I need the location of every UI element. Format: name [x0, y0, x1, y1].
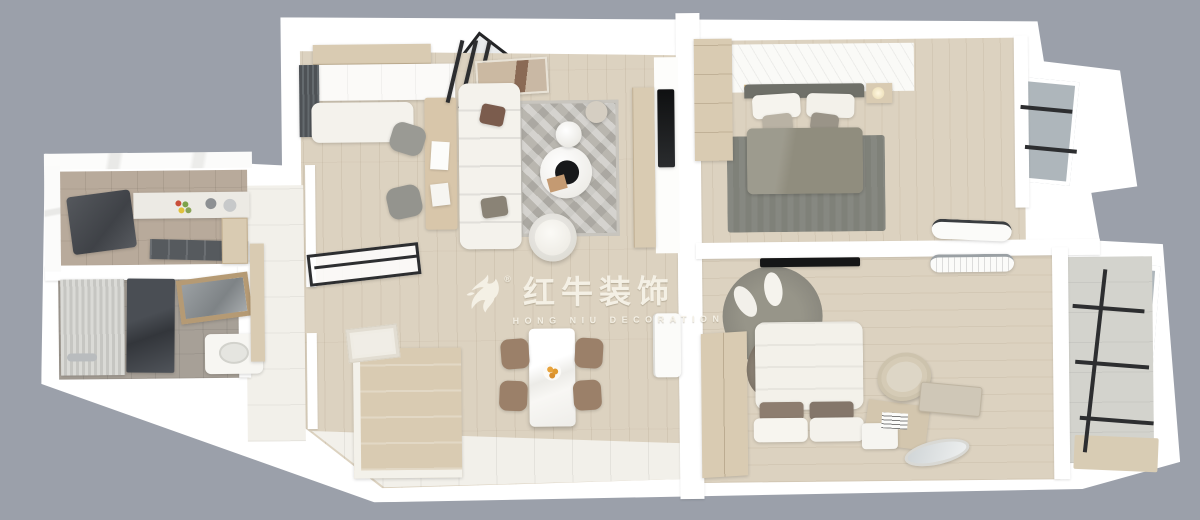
bedroom2-ac-unit [930, 254, 1014, 273]
bedroom2-pillow-white-1 [754, 418, 808, 443]
kitchen-dark-fridge [66, 189, 137, 255]
relief-wall-art [345, 324, 401, 364]
bedroom1-duvet [747, 127, 864, 194]
bedroom2-wall-tv [760, 257, 860, 267]
desk-papers [430, 141, 450, 170]
hongniu-bull-logo-icon [460, 273, 504, 313]
storage-box-label [881, 412, 908, 430]
apartment-plan: ® 红牛装饰 HONG NIU DECORATION [0, 0, 1200, 520]
dining-chair-2 [499, 380, 528, 411]
living-room-tv [657, 89, 675, 167]
vanity-mirror [176, 271, 253, 324]
bedroom2-bed [755, 321, 864, 410]
bedroom1-lamp [872, 87, 884, 99]
dining-island-cabinet [353, 347, 462, 478]
wall-bedroom-balcony [1052, 247, 1070, 479]
wall-hall-living-lower [307, 333, 318, 429]
round-armchair [529, 213, 578, 262]
bedroom2-small-rug [918, 381, 983, 417]
counter-groceries [175, 200, 181, 206]
desk-papers-2 [430, 183, 450, 207]
kitchen-side-cabinet [222, 218, 248, 264]
pot-small [205, 198, 216, 209]
dining-chair-4 [573, 379, 603, 411]
entry-top-cabinet [313, 44, 431, 65]
shower-drain [67, 353, 97, 361]
brand-watermark: ® 红牛装饰 HONG NIU DECORATION [460, 271, 681, 333]
dining-chair-3 [574, 337, 604, 369]
bedroom2-wardrobe [701, 331, 748, 478]
wall-bay-window [1014, 36, 1030, 208]
bedroom1-wardrobe [694, 39, 733, 161]
dining-chair-1 [500, 338, 530, 370]
pot-large [223, 199, 236, 212]
render-canvas: ® 红牛装饰 HONG NIU DECORATION [0, 0, 1200, 520]
sofa-pillow-gray [480, 195, 509, 219]
entry-cabinet-front [313, 64, 455, 101]
registered-trademark-symbol: ® [504, 274, 511, 284]
bedroom1-ac-unit [931, 218, 1012, 241]
watermark-title-cn: 红牛装饰 [523, 275, 675, 309]
oranges [547, 366, 553, 372]
coffee-table-small [556, 121, 582, 147]
kitchen-marble-wall-top [44, 152, 252, 170]
side-pouf [585, 101, 607, 123]
media-console [632, 87, 656, 247]
kitchen-marble-wall-left [44, 166, 61, 272]
shower-glass-enclosure [126, 279, 175, 373]
watermark-subtitle-en: HONG NIU DECORATION [513, 314, 681, 326]
hallway-cabinet [250, 244, 265, 362]
bedroom2-pillow-white-2 [810, 417, 864, 442]
